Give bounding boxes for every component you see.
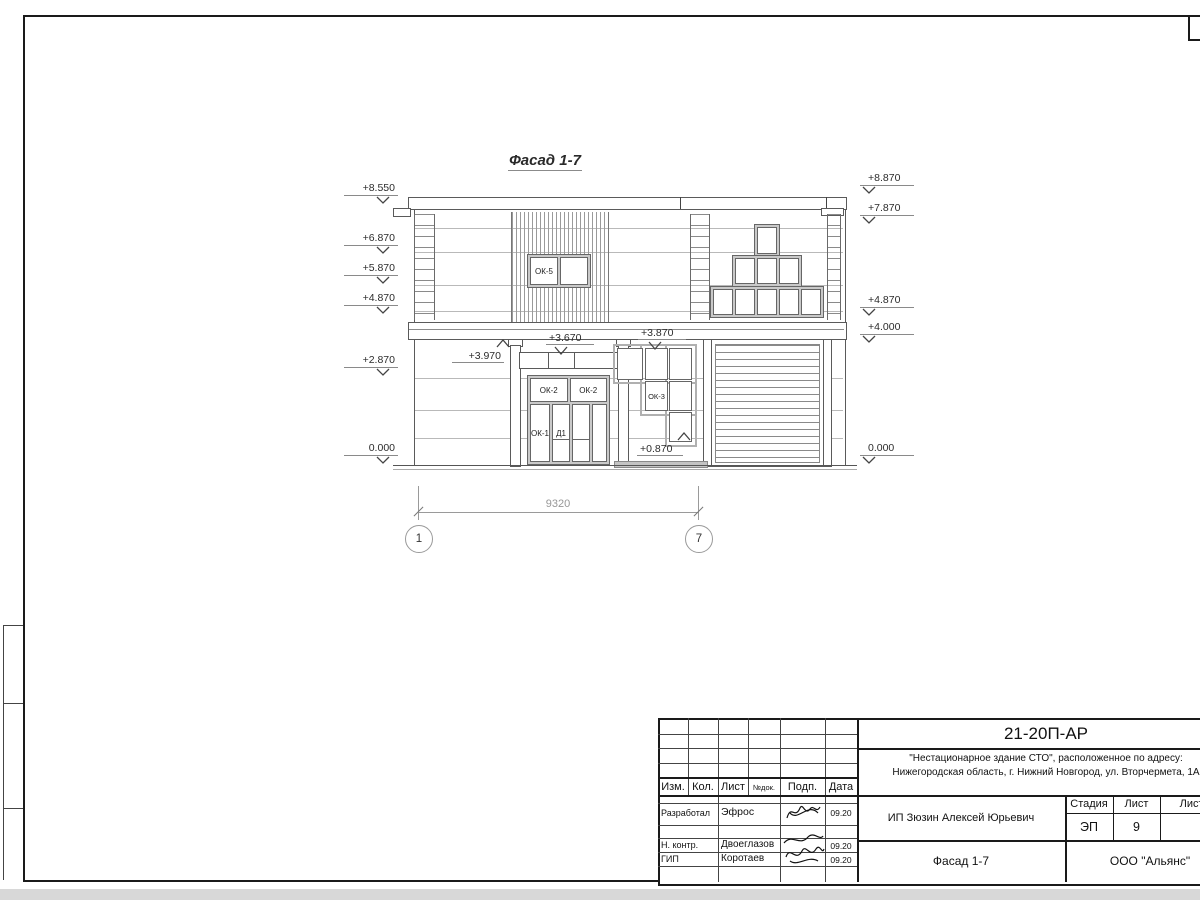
door-d1: Д1 — [552, 404, 590, 462]
elevation-mark: +5.870 — [344, 262, 398, 284]
ground-line — [393, 465, 857, 466]
pyramid-window-top — [754, 224, 780, 257]
entrance-unit: ОК-2 ОК-2 ОК-1 Д1 — [527, 375, 610, 465]
extension-line-left — [418, 486, 419, 520]
pyramid-window-middle — [732, 255, 802, 287]
transom-pane — [520, 353, 549, 368]
elevation-value: +5.870 — [344, 262, 398, 274]
elevation-mark: +8.870 — [860, 172, 914, 194]
elevation-arrow-icon — [376, 368, 390, 376]
elevation-value: +7.870 — [860, 202, 914, 214]
company-name: ООО "Альянс" — [1065, 840, 1200, 882]
brick-quoin-left — [414, 214, 435, 320]
titleblock-line — [658, 763, 857, 764]
stage-value: ЭП — [1065, 814, 1113, 839]
titleblock-line — [658, 748, 857, 749]
dimension-value: 9320 — [528, 498, 588, 510]
window-ok2-left: ОК-2 — [530, 378, 568, 402]
entrance-top-row: ОК-2 ОК-2 — [530, 378, 607, 402]
frame-top-line — [23, 15, 1200, 17]
frame-corner-box — [1188, 15, 1200, 41]
client-name: ИП Зюзин Алексей Юрьевич — [857, 795, 1065, 840]
elevation-arrow-icon — [554, 346, 568, 355]
elevation-value: +4.870 — [344, 292, 398, 304]
ok3-pane — [645, 348, 668, 380]
pyramid-pane — [757, 258, 777, 284]
sheets-label: Листов — [1160, 796, 1200, 812]
elevation-value: +6.870 — [344, 232, 398, 244]
col-data: Дата — [825, 779, 857, 795]
elevation-arrow-icon — [862, 186, 876, 194]
level-callout: +3.670 — [546, 332, 594, 345]
pyramid-pane — [801, 289, 821, 315]
elevation-arrow-icon — [862, 308, 876, 316]
pyramid-window-bottom — [710, 286, 824, 318]
elevation-mark: 0.000 — [860, 442, 914, 464]
window-ok1: ОК-1 — [530, 404, 550, 462]
elevation-mark: +4.870 — [344, 292, 398, 314]
callout-value: +3.670 — [546, 332, 594, 344]
ok3-pane — [617, 348, 643, 380]
callout-value: +3.870 — [638, 327, 686, 339]
garage-door-slats — [715, 344, 820, 463]
callout-value: +0.870 — [637, 443, 683, 455]
window-ok5: ОК-5 — [527, 254, 591, 288]
frame-left-line — [23, 15, 25, 881]
col-list: Лист — [718, 779, 748, 795]
elevation-arrow-up-icon — [677, 432, 691, 441]
page-edge-shadow — [0, 889, 1200, 900]
window-ok2-right: ОК-2 — [570, 378, 608, 402]
pyramid-pane — [735, 289, 755, 315]
door-leaf-left: Д1 — [552, 404, 570, 462]
project-address-line2: Нижегородская область, г. Нижний Новгоро… — [862, 766, 1200, 778]
elevation-value: 0.000 — [860, 442, 914, 454]
titleblock-line — [857, 748, 1200, 750]
ground-line-secondary — [393, 469, 857, 470]
entrance-side-pane — [592, 404, 607, 462]
margin-cells-line — [3, 625, 4, 880]
parapet-left-tab — [393, 208, 411, 217]
parapet-joint — [680, 197, 681, 209]
signature-scribble — [780, 831, 826, 867]
brick-quoin-right — [827, 214, 841, 320]
entrance-bottom-row: ОК-1 Д1 — [530, 404, 607, 462]
row-role: Н. контр. — [661, 840, 717, 850]
elevation-mark: +7.870 — [860, 202, 914, 224]
elevation-value: +4.870 — [860, 294, 914, 306]
drawing-sheet: Фасад 1-7 ОК-5 — [0, 0, 1200, 900]
titleblock-line — [718, 718, 719, 882]
sheet-title: Фасад 1-7 — [857, 840, 1065, 882]
sheet-number: 9 — [1113, 814, 1160, 839]
window-ok5-pane-label: ОК-5 — [530, 257, 558, 285]
brick-quoin-center — [690, 214, 710, 320]
ok3-pane — [669, 381, 692, 411]
col-izm: Изм. — [658, 779, 688, 795]
elevation-arrow-icon — [862, 216, 876, 224]
titleblock-line — [658, 866, 857, 867]
ok3-pane — [669, 348, 692, 380]
callout-value: +3.970 — [452, 350, 504, 362]
doc-number: 21-20П-АР — [857, 721, 1200, 746]
pyramid-pane — [757, 227, 777, 254]
drawing-title: Фасад 1-7 — [500, 152, 590, 169]
dimension-line — [418, 512, 698, 513]
row-date: 09.20 — [825, 807, 857, 819]
stage-label: Стадия — [1065, 796, 1113, 812]
row-role: Разработал — [661, 808, 717, 818]
row-name: Двоеглазов — [721, 839, 781, 850]
project-address-line1: "Нестационарное здание СТО", расположенн… — [862, 752, 1200, 764]
margin-cell-divider — [3, 808, 23, 809]
row-name: Эфрос — [721, 806, 779, 818]
elevation-mark: +4.000 — [860, 321, 914, 343]
col-kol: Кол. — [688, 779, 718, 795]
window-ok3-label-pane: ОК-3 — [645, 381, 668, 411]
window-ok5-pane — [560, 257, 588, 285]
elevation-mark: +6.870 — [344, 232, 398, 254]
titleblock-line — [658, 803, 857, 804]
belt-mid-line — [409, 329, 844, 330]
row-date: 09.20 — [825, 854, 857, 866]
elevation-mark: +4.870 — [860, 294, 914, 316]
pyramid-pane — [757, 289, 777, 315]
elevation-mark: +8.550 — [344, 182, 398, 204]
elevation-value: +8.870 — [860, 172, 914, 184]
pyramid-pane — [713, 289, 733, 315]
margin-cell-divider — [3, 703, 23, 704]
garage-door — [711, 339, 824, 467]
drawing-title-underline — [508, 170, 582, 171]
extension-line-right — [698, 486, 699, 520]
pyramid-pane — [779, 289, 799, 315]
elevation-arrow-icon — [376, 276, 390, 284]
level-callout: +3.870 — [638, 327, 686, 340]
elevation-arrow-icon — [376, 456, 390, 464]
level-callout: +0.870 — [637, 443, 683, 456]
col-podp: Подп. — [780, 779, 825, 795]
elevation-arrow-icon — [862, 456, 876, 464]
row-date: 09.20 — [825, 840, 857, 852]
elevation-mark: +2.870 — [344, 354, 398, 376]
signature-scribble — [783, 800, 823, 824]
door-leaf-right — [572, 404, 590, 462]
elevation-arrow-icon — [862, 335, 876, 343]
elevation-value: 0.000 — [344, 442, 398, 454]
elevation-arrow-icon — [376, 246, 390, 254]
elevation-value: +4.000 — [860, 321, 914, 333]
elevation-arrow-icon — [376, 306, 390, 314]
pyramid-pane — [735, 258, 755, 284]
elevation-arrow-up-icon — [496, 339, 510, 348]
elevation-arrow-icon — [648, 341, 662, 350]
margin-cell-divider — [3, 625, 23, 626]
transom-pane — [549, 353, 575, 368]
axis-bubble-7: 7 — [685, 525, 713, 553]
pyramid-pane — [779, 258, 799, 284]
level-callout: +3.970 — [452, 350, 504, 363]
elevation-value: +2.870 — [344, 354, 398, 366]
titleblock-line — [658, 825, 857, 826]
row-role: ГИП — [661, 854, 717, 864]
sheet-label: Лист — [1113, 796, 1160, 812]
titleblock-line — [658, 734, 857, 735]
row-name: Коротаев — [721, 853, 781, 864]
elevation-mark: 0.000 — [344, 442, 398, 464]
axis-bubble-1: 1 — [405, 525, 433, 553]
entrance-transom — [519, 352, 621, 369]
elevation-value: +8.550 — [344, 182, 398, 194]
elevation-arrow-icon — [376, 196, 390, 204]
interfloor-belt — [408, 322, 847, 340]
col-ndok: №док. — [748, 779, 780, 795]
